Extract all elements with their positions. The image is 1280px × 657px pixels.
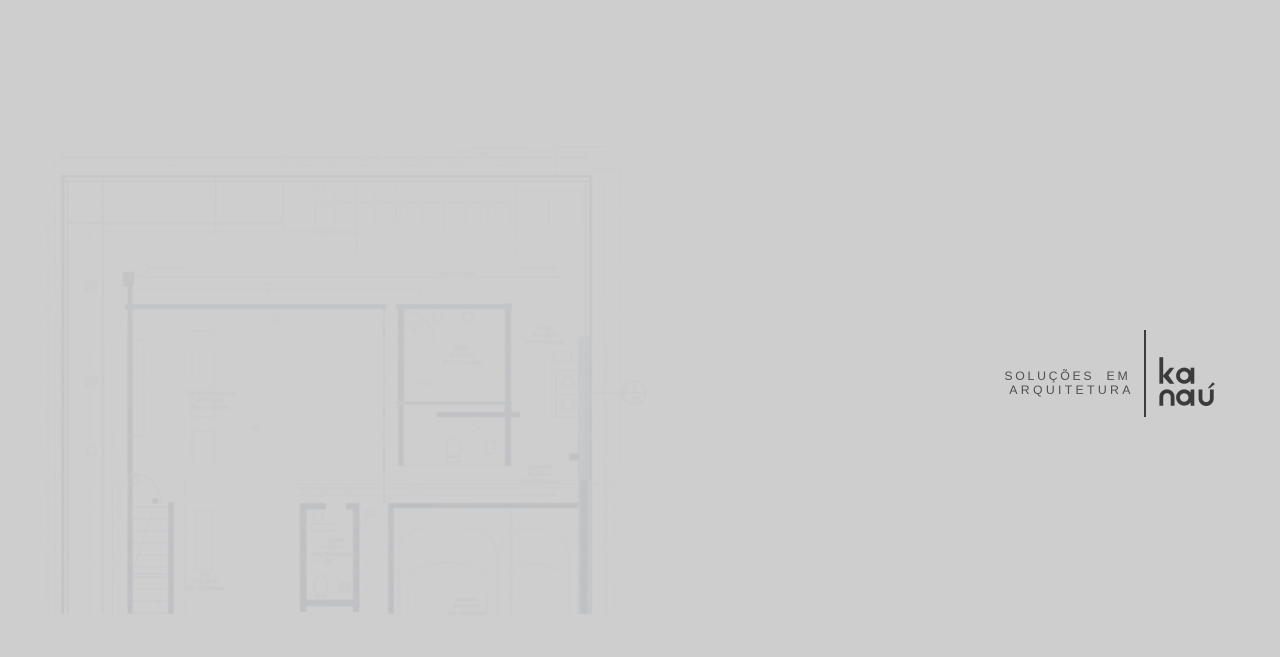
svg-text:CHURRASQUEIRA MOVEL: CHURRASQUEIRA MOVEL (474, 145, 527, 150)
svg-text:Piso: Porcelanato: Piso: Porcelanato (520, 479, 559, 485)
svg-text:Sala: Sala (200, 572, 210, 578)
svg-text:Closet: Closet (538, 326, 553, 332)
svg-text:Piso: Porcelanato: Piso: Porcelanato (447, 611, 486, 617)
svg-text:Piso: Porcelanato: Piso: Porcelanato (190, 405, 229, 411)
svg-text:Banho: Banho (455, 346, 470, 352)
svg-text:A= 2,55 m²: A= 2,55 m² (528, 472, 553, 478)
svg-text:A= 27,41 m²: A= 27,41 m² (196, 398, 224, 404)
svg-text:Lavabo: Lavabo (328, 538, 345, 544)
svg-text:TUBO DE QUEDA: TUBO DE QUEDA (438, 271, 475, 276)
svg-text:Piso: Porcelanato: Piso: Porcelanato (185, 586, 224, 592)
svg-text:A= 4,46 m²: A= 4,46 m² (533, 333, 558, 339)
svg-text:Piso: Porcelanato: Piso: Porcelanato (525, 340, 564, 346)
svg-text:A= 25,44 m²: A= 25,44 m² (453, 604, 481, 610)
svg-text:1,40: 1,40 (358, 157, 367, 162)
svg-text:A4: A4 (631, 397, 639, 403)
svg-text:7,10: 7,10 (166, 157, 175, 162)
svg-text:Sala de Churrasqueira: Sala de Churrasqueira (185, 391, 235, 397)
svg-text:3: 3 (632, 384, 637, 393)
svg-text:TUBO DE QUEDA: TUBO DE QUEDA (146, 265, 183, 270)
svg-text:Piso: Porcelanato: Piso: Porcelanato (442, 360, 481, 366)
svg-text:A= 3,25 m²: A= 3,25 m² (450, 353, 475, 359)
svg-text:Piso: Porcelanato: Piso: Porcelanato (312, 552, 351, 558)
svg-text:TUBO DE QUEDA: TUBO DE QUEDA (519, 493, 556, 498)
svg-text:3,05: 3,05 (499, 157, 508, 162)
svg-text:INOX: INOX (478, 151, 488, 156)
svg-text:2,95: 2,95 (300, 157, 309, 162)
svg-text:2,20: 2,20 (409, 157, 418, 162)
svg-text:Lavanderia: Lavanderia (528, 465, 553, 471)
svg-text:A= 2,20 m²: A= 2,20 m² (320, 545, 345, 551)
svg-text:7,10: 7,10 (263, 281, 272, 286)
svg-text:TUBO DE QUEDA: TUBO DE QUEDA (520, 265, 557, 270)
svg-text:Garagem: Garagem (457, 597, 478, 603)
svg-text:A= 21,30 m²: A= 21,30 m² (191, 579, 219, 585)
